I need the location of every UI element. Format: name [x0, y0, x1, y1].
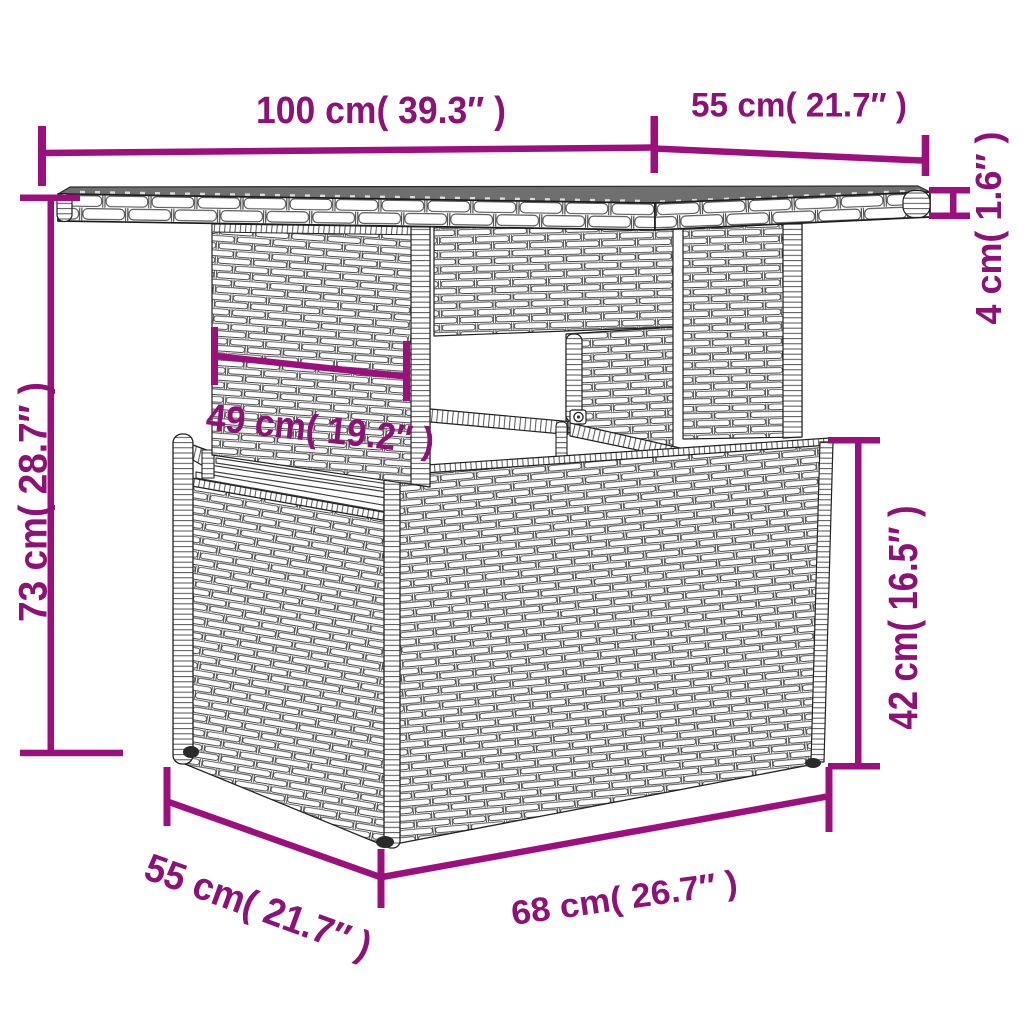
svg-text:100 cm( 39.3″ ): 100 cm( 39.3″ )	[256, 90, 506, 132]
svg-text:55 cm( 21.7″ ): 55 cm( 21.7″ )	[691, 87, 907, 125]
svg-text:4 cm( 1.6″ ): 4 cm( 1.6″ )	[968, 132, 1009, 325]
svg-text:42 cm( 16.5″ ): 42 cm( 16.5″ )	[880, 506, 926, 730]
svg-text:73 cm( 28.7″ ): 73 cm( 28.7″ )	[12, 382, 56, 622]
